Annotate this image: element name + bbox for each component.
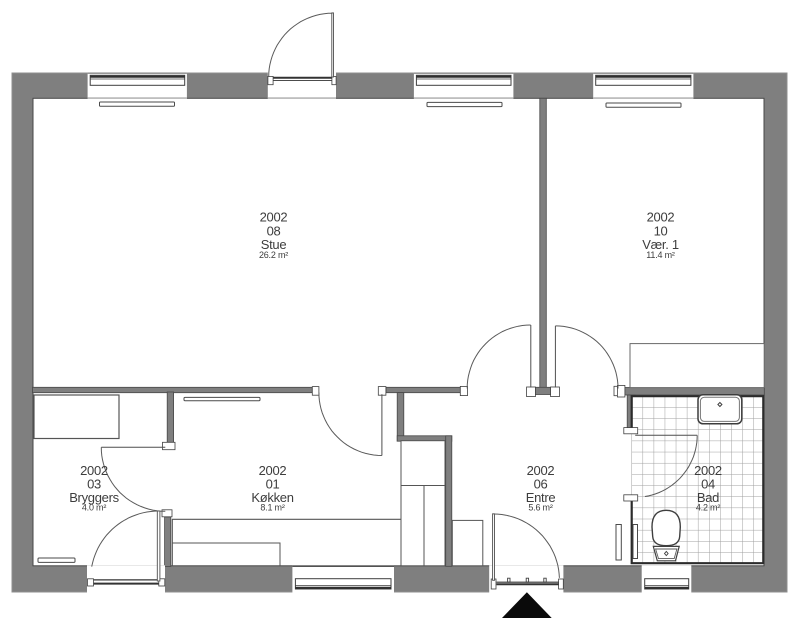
svg-text:5.6 m²: 5.6 m² [528,503,553,513]
svg-text:4.0 m²: 4.0 m² [82,503,107,513]
svg-text:26.2 m²: 26.2 m² [259,250,288,260]
svg-text:8.1 m²: 8.1 m² [260,503,285,513]
svg-text:2002: 2002 [647,210,675,225]
svg-text:4.2 m²: 4.2 m² [696,503,721,513]
svg-text:2002: 2002 [260,210,288,225]
svg-text:11.4 m²: 11.4 m² [646,250,675,260]
